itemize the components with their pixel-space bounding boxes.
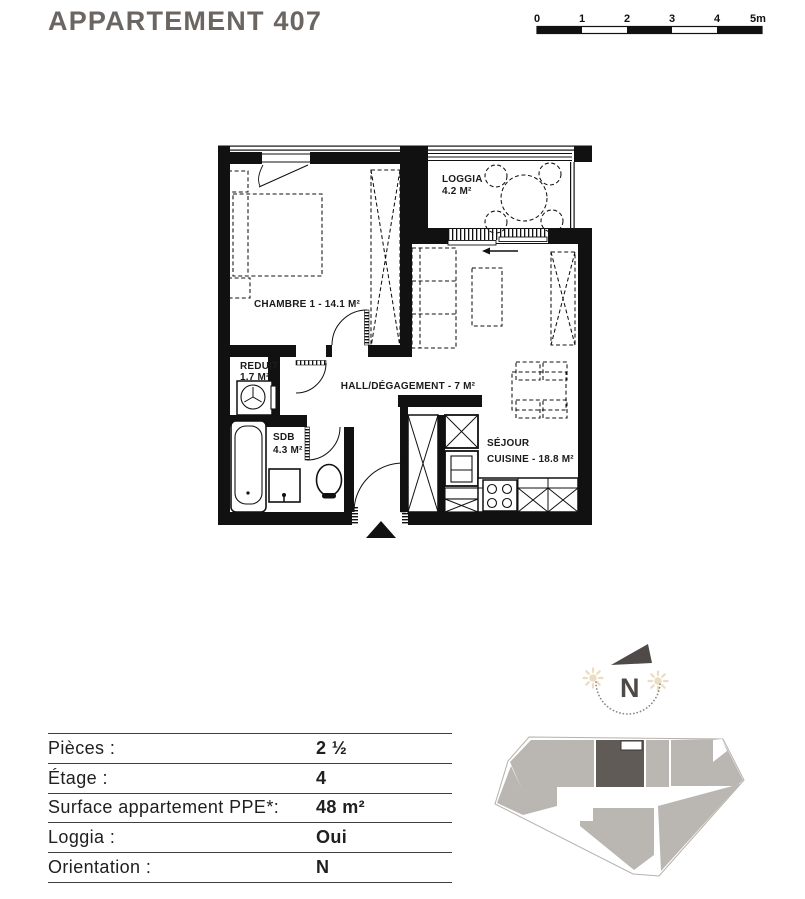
sun-icon <box>584 669 603 688</box>
table <box>512 372 566 410</box>
sejour-area: CUISINE - 18.8 M² <box>487 454 574 465</box>
loggia-label: LOGGIA <box>442 174 483 185</box>
row-label: Pièces : <box>48 738 316 759</box>
row-value: 48 m² <box>316 797 365 818</box>
sun-icon <box>649 672 668 691</box>
tall-cabinet <box>408 415 438 512</box>
chair <box>485 165 507 187</box>
sdb-door-leaf <box>305 427 310 460</box>
chambre-furniture <box>228 170 400 347</box>
sdb-area: 4.3 M² <box>273 445 303 456</box>
chair <box>516 400 540 418</box>
row-label: Surface appartement PPE*: <box>48 797 316 818</box>
fridge <box>445 415 478 448</box>
table-row-etage: Étage : 4 <box>48 763 452 793</box>
row-value: 4 <box>316 768 326 789</box>
scale-bar-segments <box>537 27 762 34</box>
sink <box>269 469 300 502</box>
hall-label: HALL/DÉGAGEMENT - 7 M² <box>341 379 476 392</box>
sejour-label: SÉJOUR <box>487 436 530 449</box>
floor-plan: LOGGIA 4.2 M² CHAMBRE 1 - 14.1 M² REDUIT… <box>210 128 602 540</box>
north-arrow-icon <box>611 644 652 665</box>
sdb-door-arc <box>307 427 340 460</box>
chambre-door-leaf <box>365 310 370 345</box>
table-row-orientation: Orientation : N <box>48 852 452 883</box>
north-label: N <box>620 673 640 703</box>
reduit-label: REDUIT <box>240 361 278 372</box>
shelf-unit <box>412 248 456 348</box>
reduit-door-leaf <box>296 361 326 366</box>
reduit-area: 1.7 M² <box>240 372 270 383</box>
sdb-label: SDB <box>273 432 295 443</box>
scale-bar: 0 1 2 3 4 5m <box>530 8 765 38</box>
wardrobe <box>551 252 575 345</box>
unit-block <box>671 739 743 786</box>
scale-tick-4: 4 <box>714 13 721 25</box>
nightstand <box>228 278 250 298</box>
scale-tick-3: 3 <box>669 13 675 25</box>
row-value: N <box>316 857 329 878</box>
coffee-table <box>472 268 502 326</box>
chair <box>539 163 561 185</box>
page-title: APPARTEMENT 407 <box>48 6 322 37</box>
row-label: Étage : <box>48 768 316 789</box>
bed <box>233 194 322 276</box>
nightstand <box>228 171 248 192</box>
scale-tick-5m: 5m <box>750 13 766 25</box>
dining-table-set <box>512 362 567 418</box>
bathtub <box>231 421 266 512</box>
oven <box>445 451 478 486</box>
stove <box>483 480 517 511</box>
floorplan-page: APPARTEMENT 407 0 1 2 3 4 5m <box>0 0 805 899</box>
reduit-door-arc <box>296 363 326 393</box>
row-value: 2 ½ <box>316 738 347 759</box>
table-row-surface: Surface appartement PPE*: 48 m² <box>48 793 452 823</box>
chair <box>516 362 540 380</box>
sejour-furniture <box>412 248 575 418</box>
slide-arrow-icon <box>482 248 490 255</box>
loggia-area: 4.2 M² <box>442 186 472 197</box>
info-table: Pièces : 2 ½ Étage : 4 Surface apparteme… <box>48 733 452 883</box>
scale-tick-0: 0 <box>534 13 540 25</box>
entrance-door-leaf <box>401 462 406 512</box>
row-label: Orientation : <box>48 857 316 878</box>
entrance-arrow-icon <box>366 521 396 538</box>
table-row-loggia: Loggia : Oui <box>48 822 452 852</box>
building-locator <box>488 730 750 882</box>
chair <box>543 400 567 418</box>
chair <box>543 362 567 380</box>
highlighted-unit-407 <box>596 740 644 787</box>
loggia-furniture <box>485 163 563 233</box>
round-table <box>501 175 547 221</box>
chambre-label: CHAMBRE 1 - 14.1 M² <box>254 299 361 310</box>
row-value: Oui <box>316 827 347 848</box>
scale-tick-1: 1 <box>579 13 585 25</box>
chambre-window <box>259 154 310 187</box>
scale-bar-numbers: 0 1 2 3 4 5m <box>534 13 766 25</box>
north-compass: N <box>580 635 680 735</box>
scale-tick-2: 2 <box>624 13 630 25</box>
chambre-door-arc <box>332 310 367 345</box>
entrance-door-arc <box>354 463 403 512</box>
toilet <box>317 465 342 499</box>
row-label: Loggia : <box>48 827 316 848</box>
unit-block <box>646 740 669 787</box>
washing-machine <box>237 381 276 415</box>
wardrobe <box>371 170 400 347</box>
table-row-pieces: Pièces : 2 ½ <box>48 733 452 763</box>
